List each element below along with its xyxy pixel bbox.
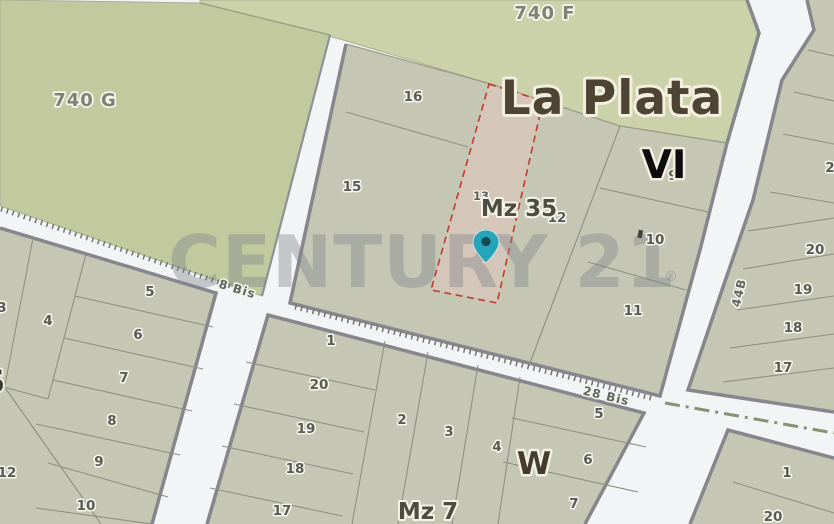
section-label-s: S [0, 364, 5, 400]
lot-west-4: 4 [43, 313, 52, 329]
lot-mz35-15: 15 [343, 179, 362, 195]
lot-mz35-11: 11 [624, 303, 643, 319]
lot-mz7-1: 1 [326, 333, 335, 349]
lot-mz7-6: 6 [583, 452, 592, 468]
lot-west-10: 10 [77, 498, 96, 514]
lot-west-3: 3 [0, 300, 7, 316]
city-label: La Plata [501, 71, 723, 126]
lot-west-5: 5 [145, 284, 154, 300]
lot-east-17: 17 [774, 360, 793, 376]
lot-mz35-16: 16 [404, 89, 423, 105]
lot-east-2: 2 [825, 160, 834, 176]
lot-mz7-7: 7 [569, 496, 578, 512]
pin-center-dot [481, 237, 490, 246]
section-label-vi: VI [642, 143, 687, 188]
lot-mz35-10: 10 [646, 232, 665, 248]
lot-mz7-3: 3 [444, 424, 453, 440]
lot-mz7-4: 4 [492, 439, 501, 455]
map-viewport[interactable]: CENTURY 21 ® 740 F 740 G La Plata 16 15 … [0, 0, 834, 524]
cadastral-map[interactable]: CENTURY 21 ® 740 F 740 G La Plata 16 15 … [0, 0, 834, 524]
area-label-740g: 740 G [53, 90, 117, 111]
lot-mz7-2: 2 [397, 412, 406, 428]
section-label-w: W [517, 446, 551, 482]
area-label-740f: 740 F [514, 3, 575, 24]
lot-east-20: 20 [806, 242, 825, 258]
lot-east-18: 18 [784, 320, 803, 336]
lot-west-7: 7 [119, 370, 128, 386]
lot-mz7-17: 17 [273, 503, 292, 519]
lot-southeast-20: 20 [764, 509, 783, 524]
lot-west-12: 12 [0, 465, 16, 481]
lot-mz7-18: 18 [286, 461, 305, 477]
lot-west-9: 9 [94, 454, 103, 470]
lot-east-19: 19 [794, 282, 813, 298]
watermark-registered-icon: ® [664, 269, 678, 285]
block-label-mz7: Mz 7 [398, 499, 458, 524]
lot-mz7-5: 5 [594, 406, 603, 422]
block-label-mz35: Mz 35 [481, 196, 557, 222]
lot-mz7-20: 20 [310, 377, 329, 393]
lot-mz7-19: 19 [297, 421, 316, 437]
lot-west-6: 6 [133, 327, 142, 343]
lot-southeast-1: 1 [782, 465, 791, 481]
lot-west-8: 8 [107, 413, 116, 429]
